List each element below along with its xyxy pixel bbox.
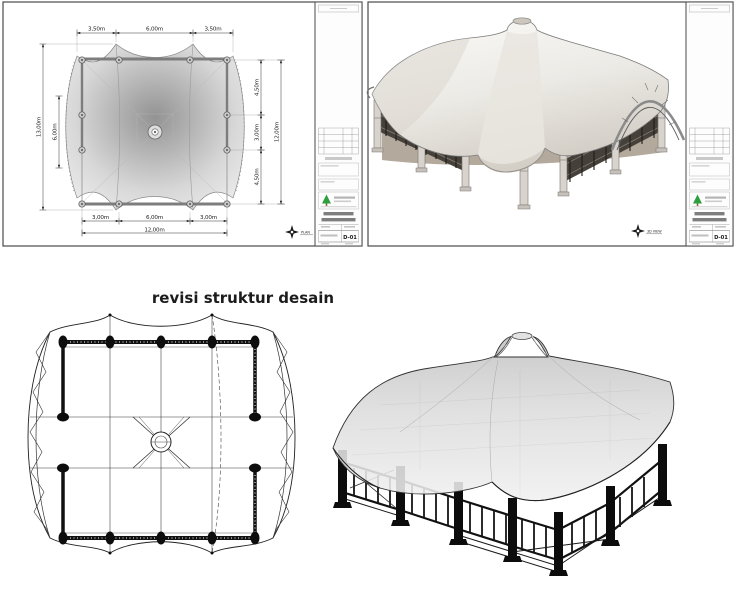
dim-label: 12,00m (144, 228, 164, 234)
dim-label: 6,00m (53, 124, 59, 141)
dim-label: 3,00m (200, 215, 217, 221)
funnel-top (513, 18, 531, 24)
title-block (686, 2, 733, 246)
dim-label: 4,50m (255, 169, 261, 186)
left-truss-zigzag (30, 332, 50, 538)
view-3d-label: 3D VIEW (647, 230, 662, 234)
dim-label: 3,50m (205, 27, 222, 33)
center-mast (148, 125, 162, 139)
sheet-number: D-01 (714, 235, 728, 241)
sheet-3d-view: D-01 (367, 2, 733, 246)
sheet-plan-view: D-01 (3, 2, 362, 246)
dim-label: 4,50m (255, 79, 261, 96)
architecture-drawing-collage: D-01 (0, 0, 735, 593)
revision-title: revisi struktur desain (152, 289, 334, 307)
plan-view-label: PLAN (301, 231, 310, 235)
title-block (315, 2, 362, 246)
dim-label: 12,00m (275, 122, 281, 142)
membrane-3d (333, 337, 674, 501)
dim-label: 3,50m (88, 27, 105, 33)
funnel-top (512, 333, 532, 340)
revised-structure-plan (28, 314, 295, 555)
dim-label: 6,00m (146, 27, 163, 33)
right-truss-zigzag (273, 332, 293, 538)
sheet-number: D-01 (343, 235, 357, 241)
dim-label: 3,00m (255, 124, 261, 141)
dim-label: 3,00m (92, 215, 109, 221)
collage-canvas: D-01 (0, 0, 735, 593)
dim-label: 6,00m (146, 215, 163, 221)
revised-structure-3d (333, 333, 674, 577)
dim-label: 13,00m (37, 117, 43, 137)
